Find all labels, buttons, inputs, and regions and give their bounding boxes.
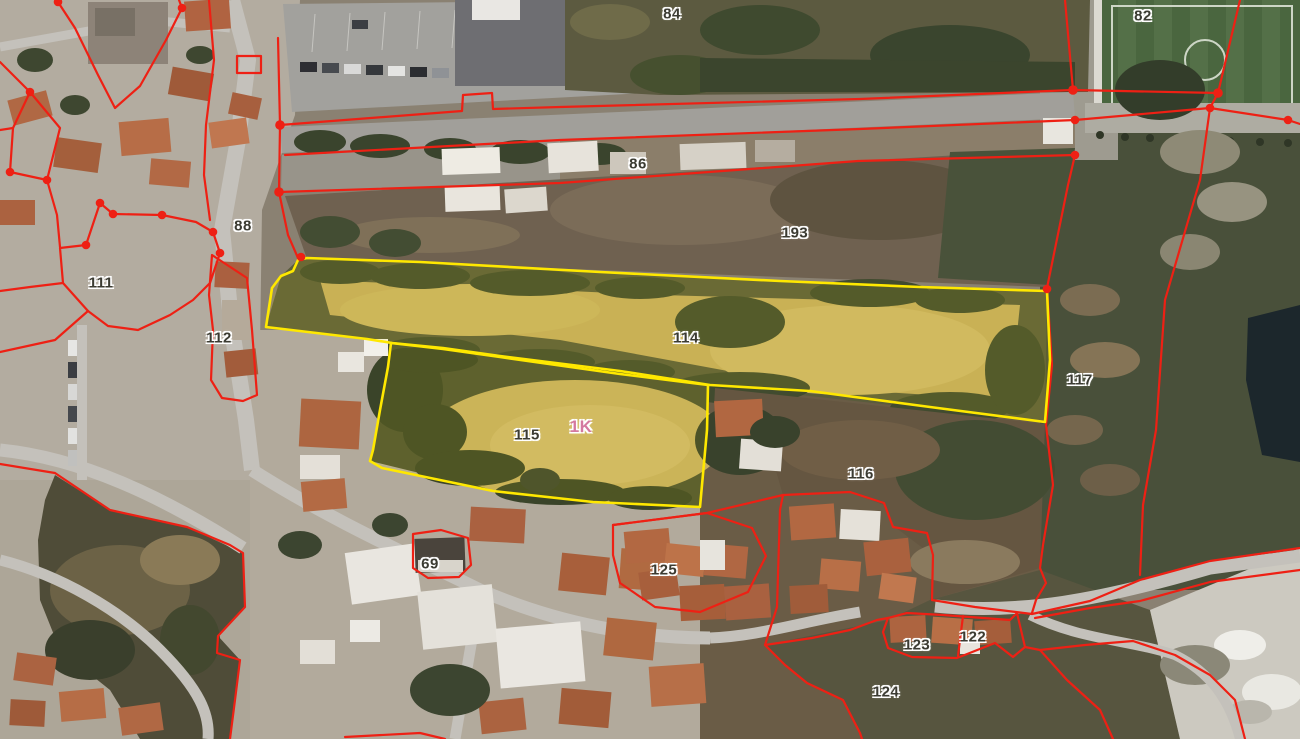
boundary-vertex-dots xyxy=(6,0,1293,293)
parcel-125-boundary xyxy=(613,513,766,612)
selected-parcel-outlines xyxy=(266,258,1050,507)
cadastral-overlay-layer xyxy=(0,0,1300,739)
parcel-112-boundary xyxy=(209,255,257,401)
parcel-123-122-boundary xyxy=(883,613,1025,658)
parcel-111-boundary xyxy=(60,203,220,330)
map-viewport[interactable]: 848286881931111121141151K117116691251231… xyxy=(0,0,1300,739)
parcel-69-boundary xyxy=(413,530,471,578)
